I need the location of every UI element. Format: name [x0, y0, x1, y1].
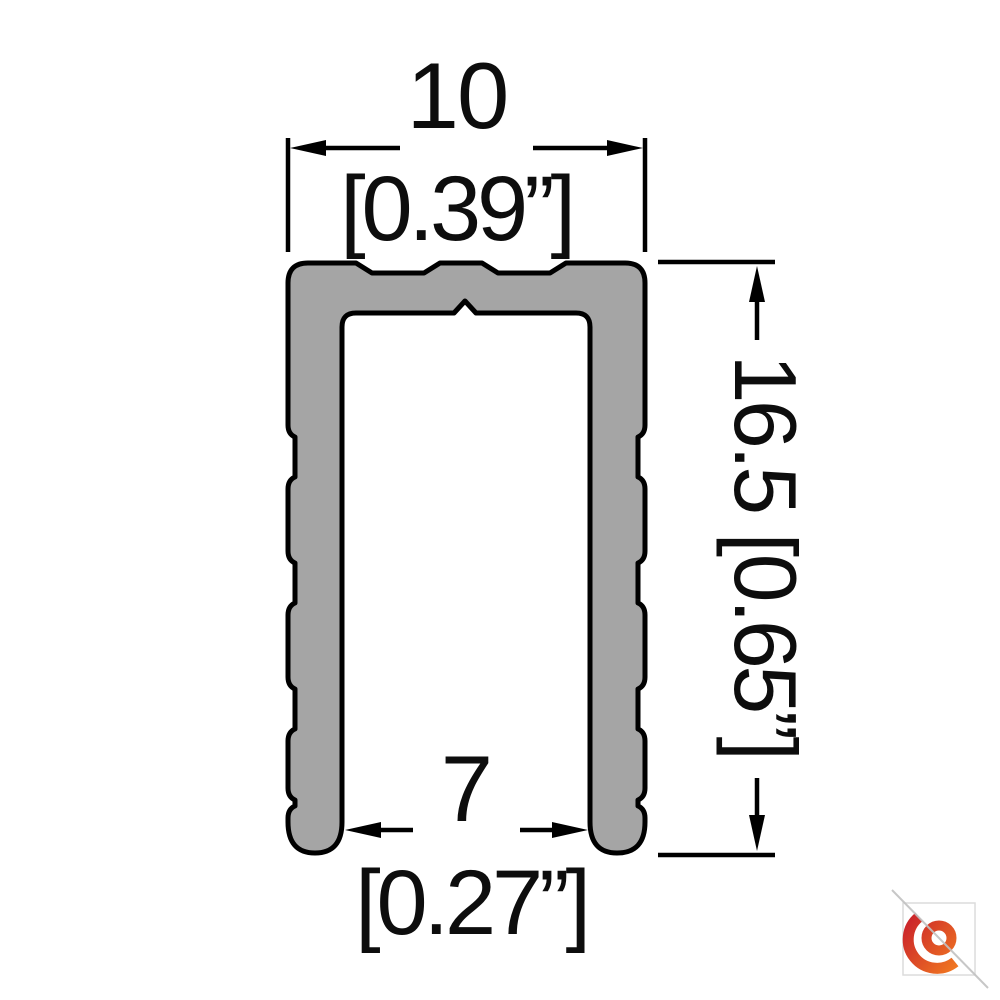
right-dim-arrow-bottom [749, 815, 765, 851]
bottom-dim-arrow-right [552, 822, 588, 838]
brand-logo [892, 890, 988, 988]
bottom-dimension-mm-label: 7 [441, 742, 491, 836]
right-dim-arrow-top [749, 266, 765, 302]
dimension-drawing-canvas: 10 [0.39”] 16.5 [0.65”] 7 [0.27”] [0, 0, 1000, 1000]
top-dim-arrow-left [290, 140, 326, 156]
right-dimension-label: 16.5 [0.65”] [721, 355, 809, 758]
technical-drawing [0, 0, 1000, 1000]
top-dimension-inches-label: [0.39”] [340, 163, 572, 255]
top-dim-arrow-right [607, 140, 643, 156]
bottom-dim-arrow-left [345, 822, 381, 838]
bottom-dimension-inches-label: [0.27”] [355, 857, 587, 949]
top-dimension-mm-label: 10 [407, 49, 508, 143]
